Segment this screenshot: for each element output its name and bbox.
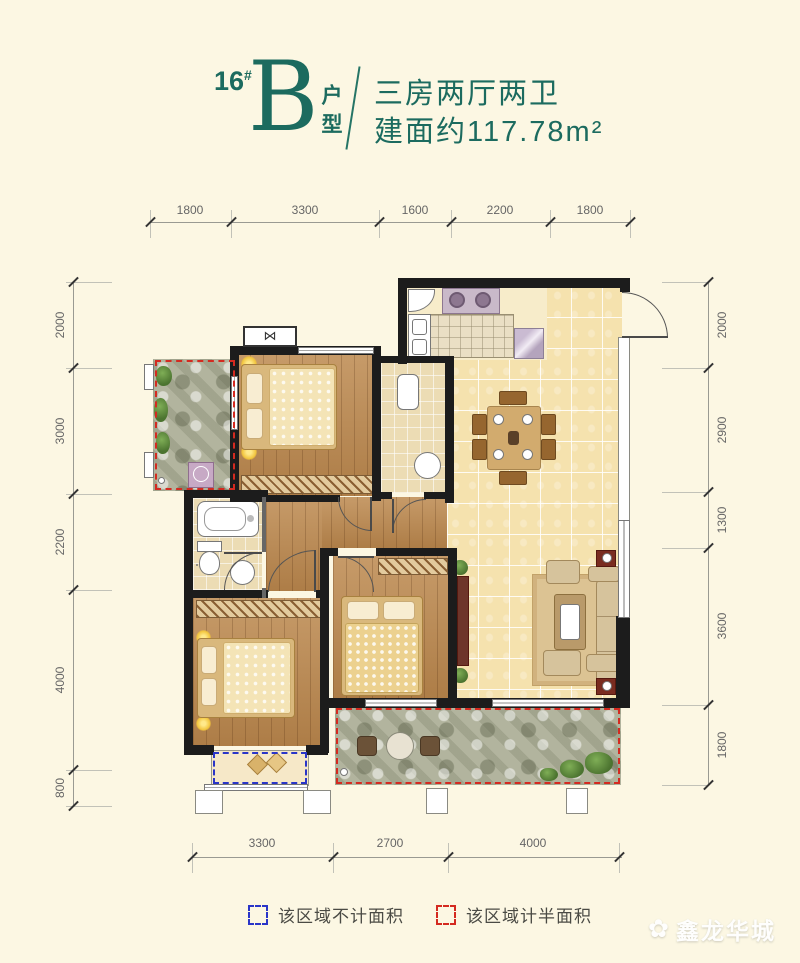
block-number-text: 16 xyxy=(214,66,244,96)
window xyxy=(144,452,154,478)
blanket xyxy=(345,623,419,693)
sofa-armrest xyxy=(588,566,620,582)
dim-label-top: 1800 xyxy=(177,203,204,217)
end-table-decor xyxy=(602,553,612,563)
column xyxy=(303,790,331,814)
wall-segment xyxy=(380,356,454,363)
wall-segment xyxy=(372,346,381,501)
bedside-lamp xyxy=(196,716,211,731)
pillow xyxy=(347,601,379,620)
dining-chair xyxy=(499,391,527,405)
exterior-wall xyxy=(618,337,630,522)
column xyxy=(426,788,448,814)
dim-label-left: 2200 xyxy=(53,520,67,564)
extension-line xyxy=(550,210,551,238)
dining-chair xyxy=(541,439,556,460)
door-leaf xyxy=(392,499,394,533)
column xyxy=(566,788,588,814)
water-heater xyxy=(397,374,419,410)
wall-segment xyxy=(184,490,193,753)
dim-label-top: 2200 xyxy=(487,203,514,217)
dining-chair xyxy=(499,471,527,485)
window xyxy=(618,520,630,618)
blanket xyxy=(269,368,335,446)
tv-cabinet xyxy=(457,576,469,666)
extension-line xyxy=(662,368,708,369)
legend-label-no-area: 该区域不计面积 xyxy=(278,902,404,927)
wall-segment xyxy=(262,588,266,598)
washbasin xyxy=(414,452,441,479)
dining-chair xyxy=(541,414,556,435)
dim-label-right: 1800 xyxy=(715,723,729,767)
entry-door-arc xyxy=(622,292,668,338)
dim-label-top: 1600 xyxy=(402,203,429,217)
wall-segment xyxy=(448,548,457,706)
extension-line xyxy=(662,282,708,283)
watermark: ✿ 鑫龙华城 xyxy=(648,912,776,946)
dining-chair xyxy=(472,439,487,460)
dim-label-bottom: 4000 xyxy=(520,836,547,850)
fridge xyxy=(514,328,544,359)
dim-label-left: 800 xyxy=(53,766,67,810)
bathtub-basin xyxy=(204,507,246,531)
end-table-decor xyxy=(602,681,612,691)
plate xyxy=(493,449,504,460)
wall-segment xyxy=(376,548,453,556)
wall-segment xyxy=(620,278,630,292)
wardrobe xyxy=(378,558,448,575)
armchair xyxy=(546,560,580,584)
wall-segment xyxy=(320,548,329,753)
watermark-text: 鑫龙华城 xyxy=(676,912,776,946)
door-leaf xyxy=(338,556,374,558)
legend-swatch-no-area xyxy=(248,905,268,925)
half-area-outline-rear-balcony xyxy=(336,708,620,784)
floorplan-page: 16# B 户型 三房两厅两卫 建面约117.78m² 1800 3300 16… xyxy=(0,0,800,963)
wall-segment xyxy=(445,356,454,503)
window xyxy=(298,347,374,354)
sink-basin xyxy=(412,339,427,355)
table-centerpiece xyxy=(508,431,519,445)
wall-segment xyxy=(262,497,266,552)
dim-label-right: 2000 xyxy=(715,303,729,347)
extension-line xyxy=(231,210,232,238)
wall-segment xyxy=(398,278,630,288)
dim-label-left: 2000 xyxy=(53,303,67,347)
flower-icon: ✿ xyxy=(648,914,669,944)
coffee-table-tray xyxy=(560,604,580,640)
dim-label-right: 1300 xyxy=(715,498,729,542)
wall-segment xyxy=(398,278,407,364)
no-area-outline-bay-window xyxy=(213,752,307,784)
block-number: 16# xyxy=(214,66,252,97)
legend: 该区域不计面积 该区域计半面积 xyxy=(248,902,592,927)
dim-label-top: 1800 xyxy=(577,203,604,217)
door-leaf xyxy=(370,497,372,531)
unit-letter: B xyxy=(248,52,319,142)
extension-line xyxy=(630,210,631,238)
legend-label-half-area: 该区域计半面积 xyxy=(466,902,592,927)
wall-segment xyxy=(184,745,214,755)
toilet-bowl xyxy=(199,551,220,575)
window xyxy=(144,364,154,390)
dining-chair xyxy=(472,414,487,435)
wall-segment xyxy=(329,548,338,556)
duct-icon: ⋈ xyxy=(243,326,297,347)
half-area-outline-side-balcony xyxy=(155,360,235,490)
extension-line xyxy=(451,210,452,238)
bathtub-drain xyxy=(247,515,254,522)
kitchen-counter xyxy=(426,314,514,358)
dimension-line-bottom xyxy=(192,857,622,858)
dim-label-right: 3600 xyxy=(715,604,729,648)
extension-line xyxy=(662,705,708,706)
dim-label-right: 2900 xyxy=(715,408,729,452)
dim-label-bottom: 2700 xyxy=(377,836,404,850)
wall-segment xyxy=(616,616,630,708)
spacer xyxy=(196,564,198,566)
pillow xyxy=(201,678,217,706)
extension-line xyxy=(662,548,708,549)
wall-segment xyxy=(321,698,333,708)
unit-type-label: 户型 xyxy=(315,84,345,142)
dim-label-left: 4000 xyxy=(53,658,67,702)
pillow xyxy=(246,373,263,404)
wall-segment xyxy=(184,590,268,598)
extension-line xyxy=(662,492,708,493)
wall-segment xyxy=(380,492,392,499)
entry-door-leaf xyxy=(622,336,668,338)
burner xyxy=(475,292,491,308)
door-leaf xyxy=(224,552,262,554)
plate xyxy=(522,414,533,425)
door-leaf xyxy=(314,550,316,592)
window xyxy=(492,699,604,707)
wardrobe xyxy=(196,600,322,618)
unit-rooms-text: 三房两厅两卫 xyxy=(374,70,560,112)
sofa-armrest xyxy=(586,654,620,672)
wall-segment xyxy=(306,745,328,755)
sink-basin xyxy=(412,319,427,335)
pillow xyxy=(201,646,217,674)
dimension-line-right xyxy=(708,282,709,785)
blanket xyxy=(223,642,291,714)
burner xyxy=(449,292,465,308)
title-divider xyxy=(345,66,360,149)
unit-area-text: 建面约117.78m² xyxy=(374,108,603,150)
dim-label-top: 3300 xyxy=(292,203,319,217)
armchair xyxy=(543,650,581,676)
wall-segment xyxy=(184,490,268,498)
extension-line xyxy=(150,210,151,238)
pillow xyxy=(246,408,263,439)
dim-label-left: 3000 xyxy=(53,409,67,453)
extension-line xyxy=(379,210,380,238)
dim-label-bottom: 3300 xyxy=(249,836,276,850)
plate xyxy=(522,449,533,460)
column xyxy=(195,790,223,814)
wall-segment xyxy=(424,492,446,499)
extension-line xyxy=(662,785,708,786)
window xyxy=(365,699,437,707)
pillow xyxy=(383,601,415,620)
legend-swatch-half-area xyxy=(436,905,456,925)
plate xyxy=(493,414,504,425)
dimension-line-top xyxy=(150,222,630,223)
